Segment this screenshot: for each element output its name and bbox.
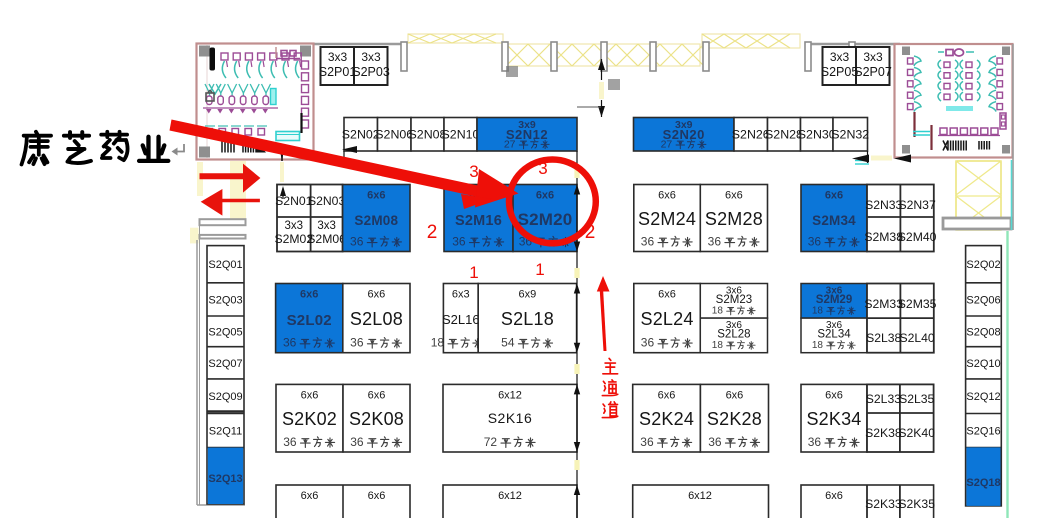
svg-text:S2Q10: S2Q10: [966, 358, 1000, 370]
svg-text:S2L38: S2L38: [866, 331, 901, 345]
svg-text:S2Q18: S2Q18: [966, 477, 1000, 489]
svg-text:6x6: 6x6: [725, 190, 743, 202]
svg-text:S2K33: S2K33: [865, 497, 902, 511]
svg-text:S2L02: S2L02: [287, 312, 332, 329]
svg-text:36: 36: [641, 235, 655, 249]
svg-text:6x6: 6x6: [536, 190, 554, 202]
svg-text:S2M28: S2M28: [705, 209, 763, 229]
svg-text:S2Q03: S2Q03: [208, 294, 242, 306]
svg-text:S2N37: S2N37: [898, 198, 935, 212]
svg-text:18: 18: [712, 340, 724, 351]
svg-text:S2Q16: S2Q16: [966, 426, 1000, 438]
svg-text:36: 36: [283, 435, 297, 449]
svg-text:18: 18: [812, 306, 824, 317]
svg-text:S2K38: S2K38: [865, 426, 902, 440]
svg-text:6x6: 6x6: [301, 490, 319, 502]
svg-text:S2N30: S2N30: [798, 128, 836, 142]
svg-text:S2N10: S2N10: [442, 128, 480, 142]
svg-text:S2M16: S2M16: [455, 213, 502, 229]
svg-text:S2N33: S2N33: [865, 198, 902, 212]
svg-text:S2N32: S2N32: [831, 128, 869, 142]
svg-text:S2K34: S2K34: [806, 409, 861, 429]
svg-text:27: 27: [504, 139, 516, 151]
svg-text:27: 27: [661, 139, 673, 151]
svg-text:18: 18: [431, 336, 445, 350]
svg-text:S2P03: S2P03: [352, 65, 390, 79]
svg-text:S2Q13: S2Q13: [208, 473, 242, 485]
svg-text:S2M29: S2M29: [816, 294, 852, 306]
svg-text:6x12: 6x12: [498, 490, 522, 502]
svg-text:S2Q01: S2Q01: [208, 259, 242, 271]
svg-text:1: 1: [535, 260, 544, 279]
svg-text:S2K16: S2K16: [488, 410, 533, 426]
svg-text:6x12: 6x12: [688, 490, 712, 502]
svg-text:6x6: 6x6: [825, 190, 843, 202]
svg-text:18: 18: [812, 340, 824, 351]
svg-text:S2M24: S2M24: [638, 209, 696, 229]
svg-text:S2Q09: S2Q09: [208, 391, 242, 403]
svg-text:6x9: 6x9: [519, 289, 537, 301]
svg-text:S2L34: S2L34: [817, 329, 851, 341]
svg-text:S2N02: S2N02: [342, 128, 380, 142]
svg-text:36: 36: [708, 235, 722, 249]
svg-text:S2M06: S2M06: [307, 232, 346, 246]
svg-text:3: 3: [469, 162, 478, 181]
svg-text:18: 18: [712, 306, 724, 317]
svg-text:3x3: 3x3: [328, 50, 348, 64]
svg-text:6x6: 6x6: [825, 490, 843, 502]
svg-text:36: 36: [350, 435, 364, 449]
svg-text:6x6: 6x6: [658, 389, 676, 401]
svg-text:S2L28: S2L28: [717, 329, 750, 341]
svg-text:36: 36: [641, 336, 655, 350]
svg-text:S2K02: S2K02: [282, 409, 337, 429]
svg-text:6x6: 6x6: [368, 490, 386, 502]
svg-text:S2L16: S2L16: [442, 312, 480, 327]
svg-text:S2K35: S2K35: [898, 497, 935, 511]
svg-text:6x6: 6x6: [658, 190, 676, 202]
svg-text:6x6: 6x6: [301, 389, 319, 401]
svg-text:S2M35: S2M35: [898, 297, 937, 311]
svg-text:S2M23: S2M23: [716, 294, 752, 306]
svg-text:S2K24: S2K24: [639, 409, 694, 429]
svg-text:S2M40: S2M40: [898, 230, 937, 244]
svg-text:3x3: 3x3: [285, 220, 304, 232]
svg-text:2: 2: [427, 222, 438, 243]
svg-text:36: 36: [350, 336, 364, 350]
svg-text:S2Q05: S2Q05: [208, 326, 242, 338]
svg-text:S2P05: S2P05: [821, 65, 859, 79]
svg-text:S2L33: S2L33: [866, 392, 901, 406]
svg-text:36: 36: [350, 235, 364, 249]
svg-text:S2Q11: S2Q11: [209, 426, 242, 438]
svg-text:36: 36: [808, 235, 822, 249]
svg-text:6x6: 6x6: [825, 389, 843, 401]
svg-text:3x3: 3x3: [361, 50, 381, 64]
svg-text:S2K40: S2K40: [898, 426, 935, 440]
svg-text:36: 36: [640, 435, 654, 449]
svg-text:S2L18: S2L18: [501, 309, 554, 329]
svg-text:36: 36: [283, 336, 297, 350]
svg-text:S2L08: S2L08: [350, 309, 403, 329]
svg-text:36: 36: [452, 235, 466, 249]
svg-text:3x3: 3x3: [863, 50, 883, 64]
svg-text:S2Q12: S2Q12: [966, 391, 1000, 403]
svg-text:S2M20: S2M20: [518, 210, 573, 229]
svg-text:S2Q07: S2Q07: [208, 358, 242, 370]
svg-text:S2L35: S2L35: [899, 392, 934, 406]
svg-text:S2P07: S2P07: [854, 65, 892, 79]
svg-text:6x6: 6x6: [368, 389, 386, 401]
svg-text:3x3: 3x3: [830, 50, 850, 64]
svg-text:S2L40: S2L40: [899, 331, 934, 345]
svg-text:54: 54: [501, 336, 515, 350]
svg-text:S2Q06: S2Q06: [966, 294, 1000, 306]
svg-text:S2K28: S2K28: [707, 409, 762, 429]
svg-text:S2Q02: S2Q02: [966, 259, 1000, 271]
svg-text:S2N03: S2N03: [308, 194, 345, 208]
svg-text:6x6: 6x6: [726, 389, 744, 401]
svg-text:6x3: 6x3: [452, 289, 470, 301]
svg-text:1: 1: [469, 263, 478, 282]
svg-text:36: 36: [708, 435, 722, 449]
svg-text:72: 72: [484, 435, 498, 449]
svg-text:S2Q08: S2Q08: [966, 326, 1000, 338]
svg-text:S2M08: S2M08: [354, 213, 398, 228]
svg-text:6x12: 6x12: [498, 389, 522, 401]
svg-text:S2P01: S2P01: [319, 65, 357, 79]
svg-text:6x6: 6x6: [300, 289, 318, 301]
svg-text:S2L24: S2L24: [641, 309, 694, 329]
svg-text:S2K08: S2K08: [349, 409, 404, 429]
svg-text:6x6: 6x6: [368, 289, 386, 301]
svg-text:36: 36: [808, 435, 822, 449]
svg-text:3x3: 3x3: [317, 220, 336, 232]
svg-text:S2M34: S2M34: [812, 213, 856, 228]
svg-text:6x6: 6x6: [658, 289, 676, 301]
svg-text:6x6: 6x6: [367, 190, 385, 202]
